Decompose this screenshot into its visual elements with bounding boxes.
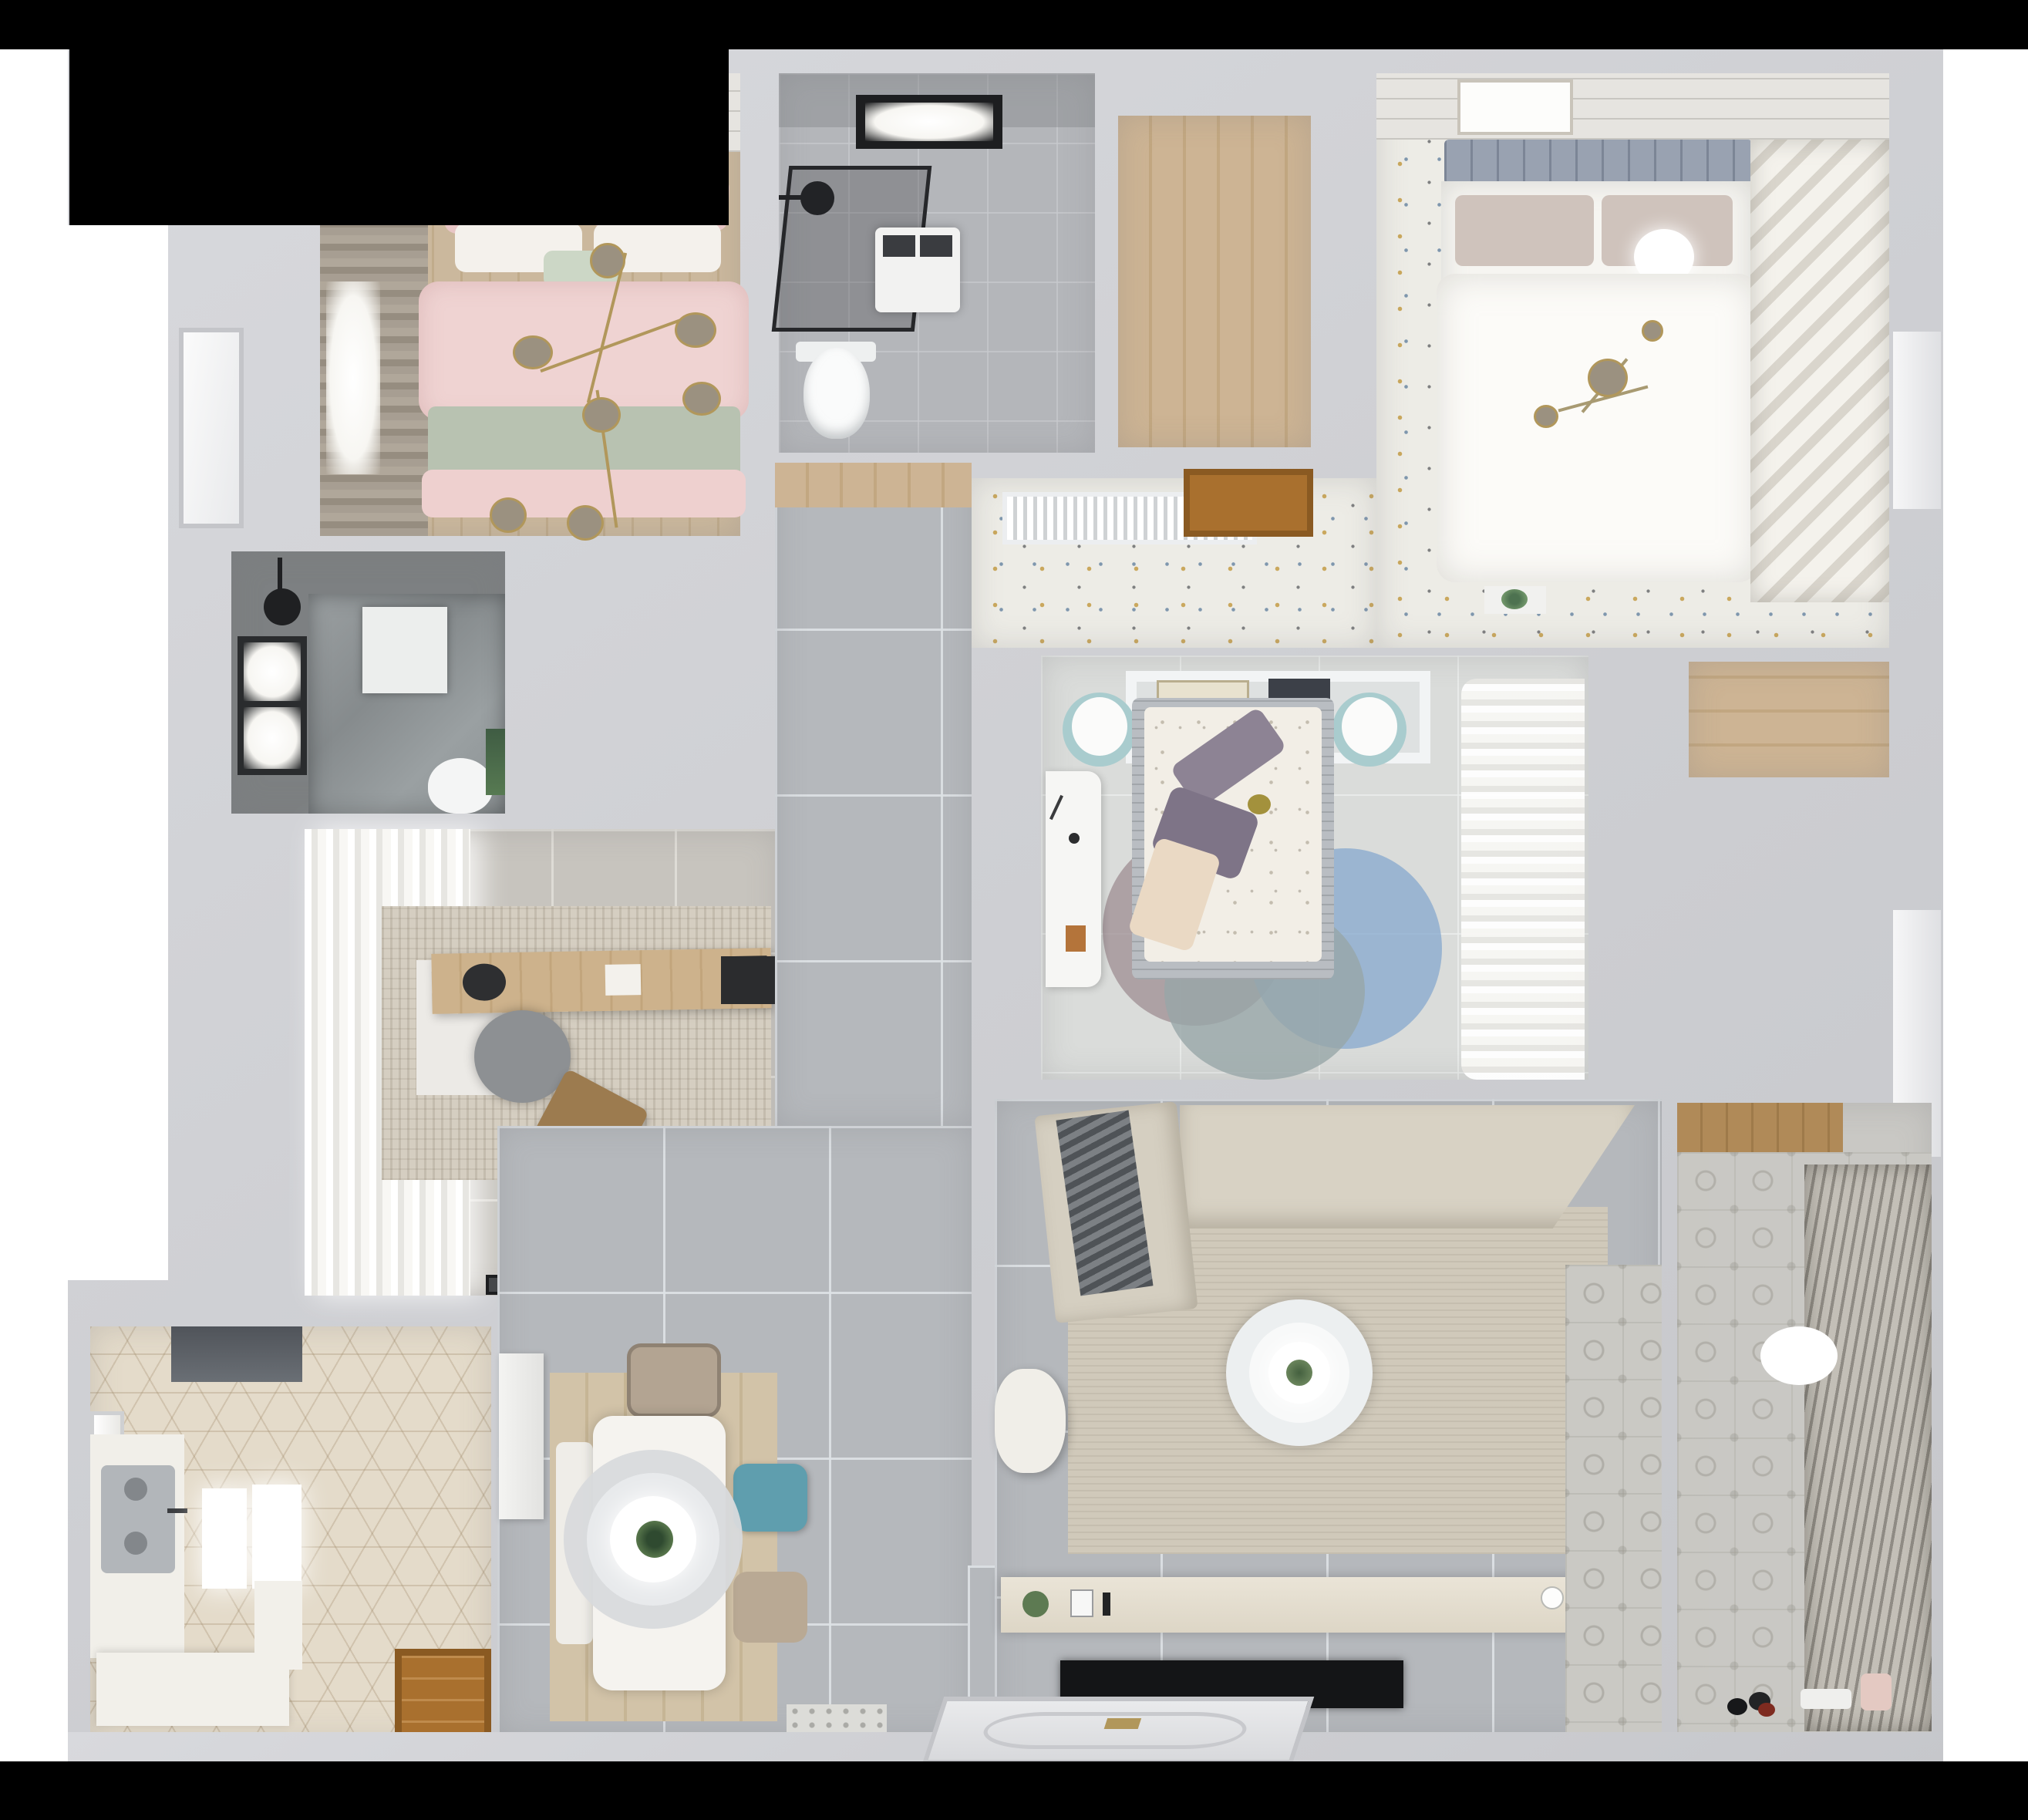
plant-ledge xyxy=(1484,586,1546,614)
bed-master xyxy=(1441,181,1751,575)
plant-icon xyxy=(1501,589,1528,609)
console-bottle xyxy=(1103,1592,1110,1616)
sink-drain-2 xyxy=(124,1532,147,1555)
master-closet xyxy=(1750,140,1889,602)
entry-wood-door xyxy=(395,1649,491,1741)
wall-shelf-black xyxy=(721,956,775,1004)
patterned-threshold xyxy=(1565,1265,1662,1735)
left-margin-cutout xyxy=(68,225,168,1280)
window-light xyxy=(326,281,380,474)
white-tray xyxy=(1801,1689,1851,1709)
floorplan-stage xyxy=(0,0,2028,1820)
master-bedroom xyxy=(1376,73,1889,648)
pillow-taupe-1 xyxy=(1455,195,1594,266)
armchair-white xyxy=(995,1369,1066,1473)
living xyxy=(995,1099,1662,1735)
art-frame-botanical xyxy=(1457,79,1573,135)
bathroom-top xyxy=(779,73,1095,453)
washing-machine xyxy=(875,228,960,312)
oval-mat xyxy=(1760,1326,1838,1385)
toilet-bowl xyxy=(803,348,870,439)
counter-right-block xyxy=(254,1581,302,1670)
sink-double xyxy=(101,1465,175,1573)
gold-accent xyxy=(1248,794,1271,814)
suite-corridor xyxy=(972,478,1376,648)
coffee-table-plant xyxy=(1286,1360,1312,1386)
white-desk xyxy=(1046,771,1101,987)
tall-cabinet xyxy=(499,1353,544,1519)
bedroom-pink-door xyxy=(179,328,244,528)
faucet xyxy=(167,1508,187,1513)
shower-arm-dark xyxy=(278,558,282,593)
console-plant xyxy=(1022,1591,1049,1617)
tv-console xyxy=(1001,1577,1587,1633)
alcove-wood xyxy=(1689,662,1889,777)
wood-door-suite xyxy=(1184,469,1313,537)
window-light xyxy=(244,642,301,701)
sheer-curtains xyxy=(1461,679,1585,1080)
toilet-dark-bath xyxy=(428,758,493,814)
dining xyxy=(550,1373,777,1721)
window-niche-1 xyxy=(1893,332,1941,509)
chair-teal xyxy=(733,1464,807,1532)
louver-blinds xyxy=(1804,1164,1932,1731)
pouf-teal-left xyxy=(1063,693,1137,767)
entry-mat xyxy=(787,1704,887,1734)
ceiling-light-1 xyxy=(202,1488,247,1589)
wood-landing xyxy=(775,463,972,507)
bedroom-center xyxy=(1041,656,1588,1080)
ceiling-light-2 xyxy=(252,1485,302,1589)
balcony-wood-counter xyxy=(1677,1103,1843,1152)
sink-drain-1 xyxy=(124,1478,147,1501)
plant-centerpiece xyxy=(636,1521,673,1558)
bathroom-dark xyxy=(231,551,505,814)
console-frame xyxy=(1070,1589,1093,1617)
range-hood xyxy=(171,1326,302,1382)
balcony xyxy=(1677,1103,1932,1739)
entry-door-panel xyxy=(922,1697,1315,1764)
paper-icon xyxy=(605,964,642,996)
counter-left xyxy=(90,1434,184,1658)
duvet-white xyxy=(1437,274,1757,582)
mask-bottom-band xyxy=(0,1761,2028,1820)
headboard-gray xyxy=(1444,140,1753,184)
bed-center xyxy=(1132,698,1334,979)
pen-icon xyxy=(1049,795,1063,821)
skylight-glass xyxy=(865,103,993,141)
branch-chandelier xyxy=(490,251,736,575)
chair-top-beige xyxy=(627,1343,721,1417)
closet-room xyxy=(1118,116,1311,447)
door-handle-gold xyxy=(1104,1718,1142,1729)
toys-cluster xyxy=(1727,1690,1792,1718)
console-cup xyxy=(1541,1586,1564,1609)
shower-head-dark xyxy=(264,588,301,625)
kitchen xyxy=(90,1326,491,1741)
paneled-wall xyxy=(1376,73,1889,140)
desk-lamp-icon xyxy=(463,963,507,1001)
desk-box xyxy=(1066,925,1086,952)
pink-containers xyxy=(1861,1673,1892,1710)
mask-top-left-block xyxy=(69,0,729,225)
pouf-teal-right xyxy=(1332,693,1406,767)
desk-knob xyxy=(1069,833,1080,844)
hallway-corridor xyxy=(775,463,972,1126)
chair-beige-right xyxy=(733,1572,807,1643)
shower-tray xyxy=(362,607,447,693)
window-light-2 xyxy=(244,707,301,769)
shower-arm xyxy=(779,195,810,200)
plant-green xyxy=(486,729,505,795)
